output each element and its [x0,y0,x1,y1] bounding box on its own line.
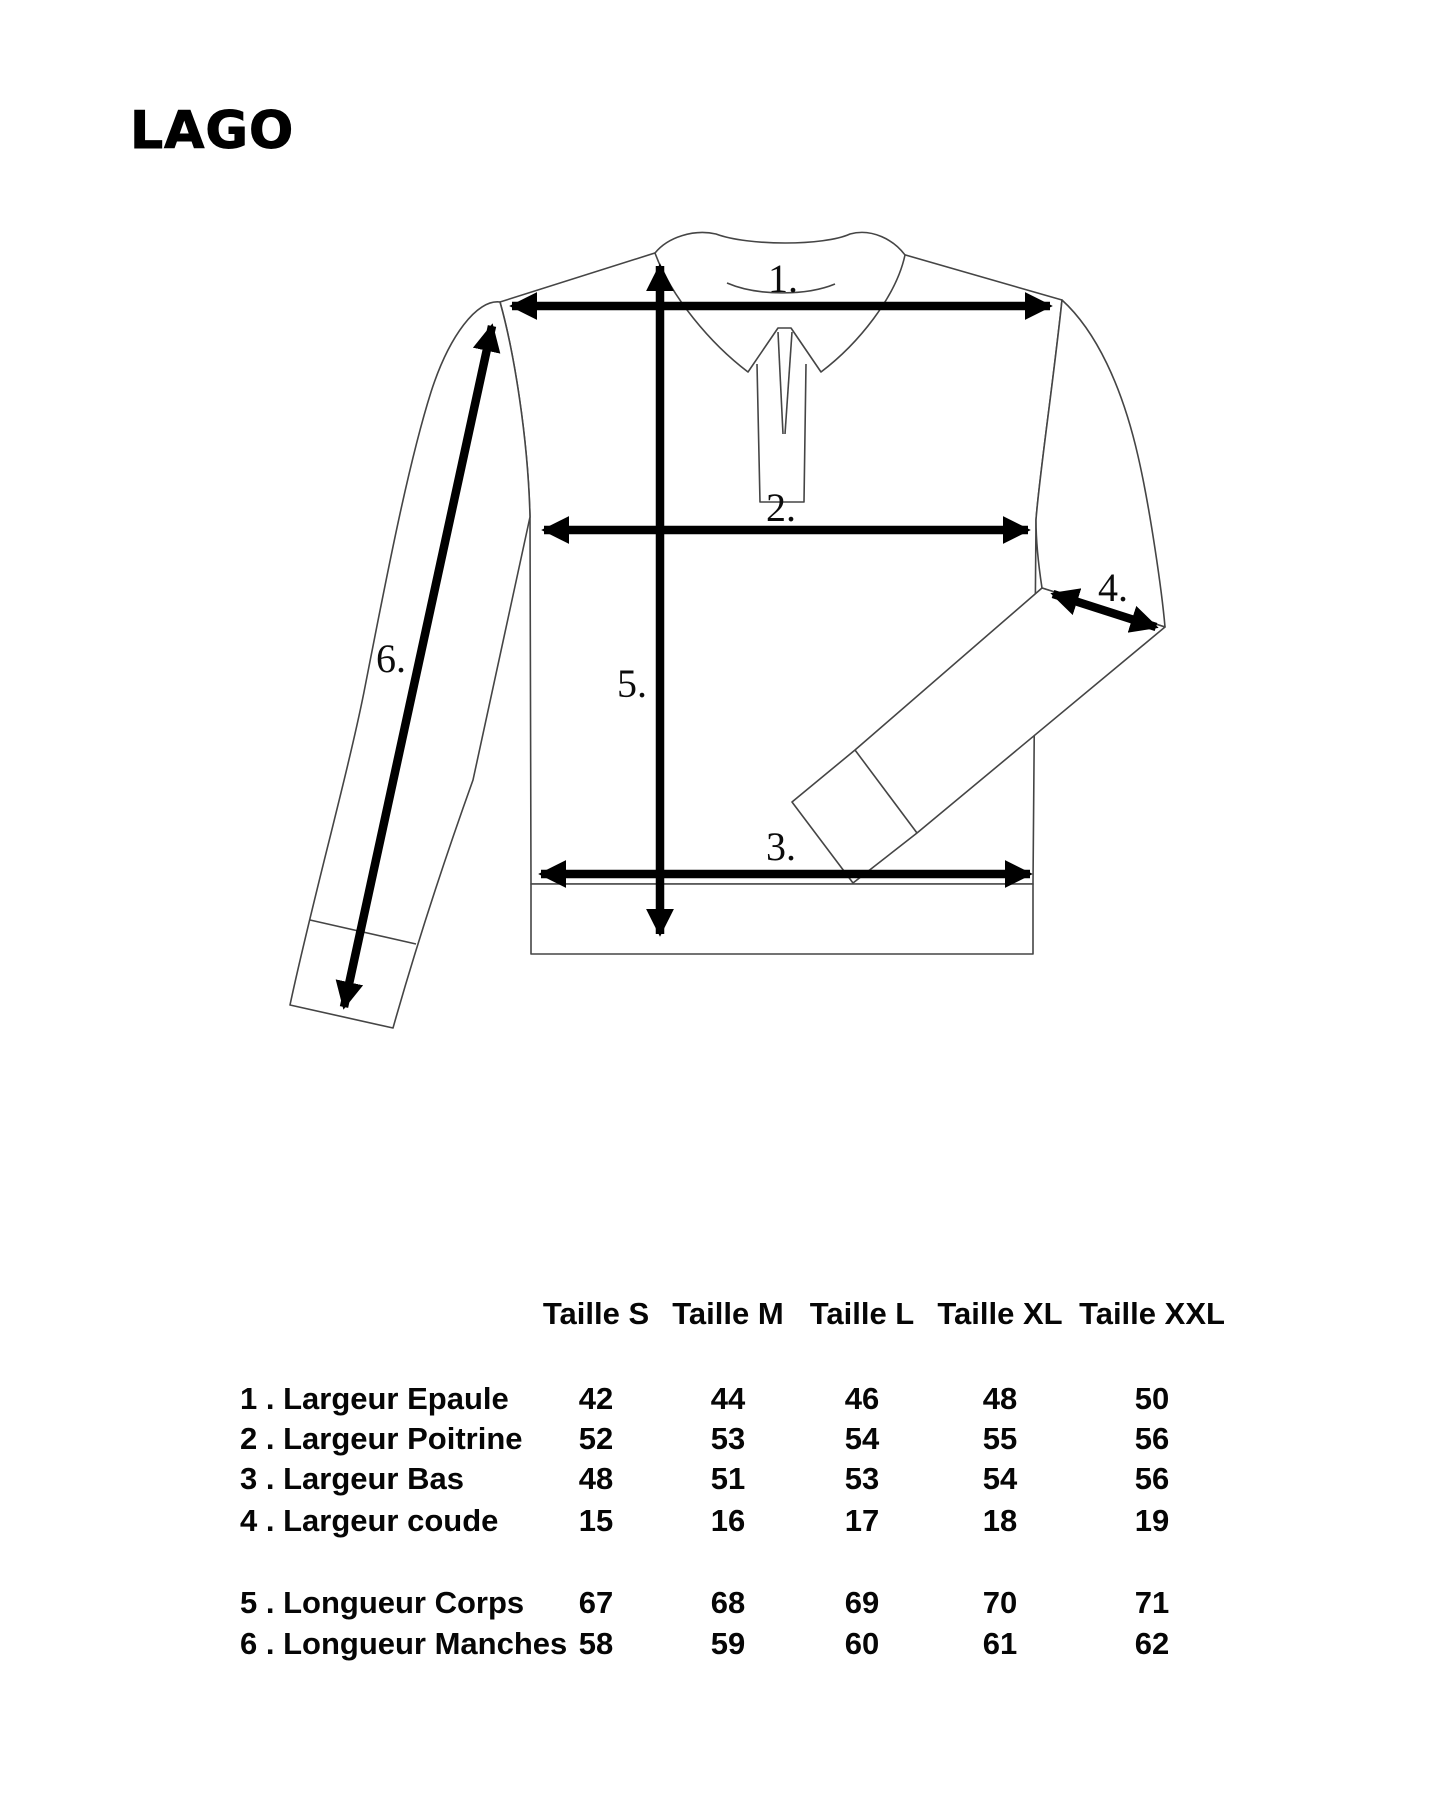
row-label: 2 . Largeur Poitrine [240,1421,523,1457]
cell-value: 53 [845,1461,879,1497]
cell-value: 17 [845,1503,879,1539]
cell-value: 15 [579,1503,613,1539]
cell-value: 42 [579,1381,613,1417]
cell-value: 18 [983,1503,1017,1539]
cell-value: 55 [983,1421,1017,1457]
cell-value: 50 [1135,1381,1169,1417]
cell-value: 69 [845,1585,879,1621]
cell-value: 16 [711,1503,745,1539]
column-header-taille-xl: Taille XL [937,1296,1062,1332]
cell-value: 19 [1135,1503,1169,1539]
cell-value: 61 [983,1626,1017,1662]
cell-value: 48 [983,1381,1017,1417]
cell-value: 48 [579,1461,613,1497]
cell-value: 68 [711,1585,745,1621]
cell-value: 60 [845,1626,879,1662]
cell-value: 52 [579,1421,613,1457]
cell-value: 71 [1135,1585,1169,1621]
size-table: Taille S Taille M Taille L Taille XL Tai… [0,0,1445,1819]
row-label: 3 . Largeur Bas [240,1461,464,1497]
table-row-largeur-epaule: 1 . Largeur Epaule 42 44 46 48 50 [0,1381,1445,1421]
column-header-taille-s: Taille S [543,1296,649,1332]
row-label: 4 . Largeur coude [240,1503,498,1539]
size-table-header: Taille S Taille M Taille L Taille XL Tai… [0,1296,1445,1336]
cell-value: 54 [983,1461,1017,1497]
table-row-longueur-manches: 6 . Longueur Manches 58 59 60 61 62 [0,1626,1445,1666]
table-row-largeur-poitrine: 2 . Largeur Poitrine 52 53 54 55 56 [0,1421,1445,1461]
table-row-largeur-coude: 4 . Largeur coude 15 16 17 18 19 [0,1503,1445,1543]
cell-value: 70 [983,1585,1017,1621]
row-label: 6 . Longueur Manches [240,1626,567,1662]
size-guide-page: LAGO [0,0,1445,1819]
cell-value: 59 [711,1626,745,1662]
cell-value: 67 [579,1585,613,1621]
cell-value: 54 [845,1421,879,1457]
cell-value: 44 [711,1381,745,1417]
column-header-taille-m: Taille M [672,1296,783,1332]
row-label: 1 . Largeur Epaule [240,1381,509,1417]
cell-value: 53 [711,1421,745,1457]
cell-value: 62 [1135,1626,1169,1662]
cell-value: 56 [1135,1421,1169,1457]
cell-value: 58 [579,1626,613,1662]
column-header-taille-l: Taille L [810,1296,915,1332]
table-row-largeur-bas: 3 . Largeur Bas 48 51 53 54 56 [0,1461,1445,1501]
cell-value: 46 [845,1381,879,1417]
cell-value: 51 [711,1461,745,1497]
cell-value: 56 [1135,1461,1169,1497]
column-header-taille-xxl: Taille XXL [1079,1296,1225,1332]
row-label: 5 . Longueur Corps [240,1585,524,1621]
table-row-longueur-corps: 5 . Longueur Corps 67 68 69 70 71 [0,1585,1445,1625]
